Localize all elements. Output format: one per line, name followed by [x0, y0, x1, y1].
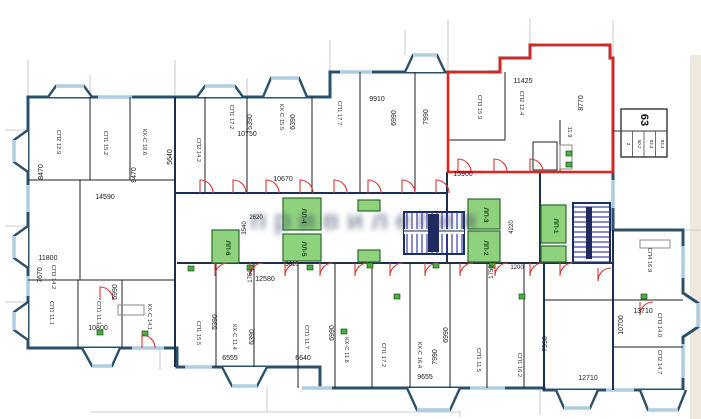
dim-label: 12710: [578, 375, 598, 382]
dim-label: 9910: [369, 96, 385, 103]
room-label: КХ-С 16.4: [416, 342, 422, 369]
room-label: СП2 12.9: [55, 130, 61, 154]
room-label: СП2 14.2: [195, 138, 201, 162]
page-edge: [690, 55, 701, 419]
dim-label: 7990: [432, 349, 439, 365]
room-label: КХ-С 11.4: [231, 324, 237, 351]
dim-label: 11425: [514, 78, 533, 85]
dim-label: 9470: [131, 167, 138, 183]
dim-label: 6990: [443, 327, 450, 343]
room-label: СП3 14.2: [50, 265, 56, 289]
room-label: СП1 11.1: [48, 301, 54, 325]
dim-label: 7990: [423, 109, 430, 125]
unit-stamp[interactable]: 63 3 50.2 83.3 83.3: [613, 109, 667, 157]
dim-label: 1750: [248, 269, 254, 283]
dim-label: 10670: [273, 176, 293, 183]
dim-label: 10800: [88, 325, 108, 332]
room-label: КХ-С 15.5: [278, 104, 284, 130]
room-label: СП1 16.2: [516, 353, 522, 377]
dim-label: 1200: [510, 265, 524, 271]
room-label: СП1 11.5: [475, 348, 481, 372]
room-label: СП1 11.7: [303, 325, 309, 349]
dim-label: 6990: [391, 110, 398, 126]
room-label: СП4 16.9: [646, 248, 652, 272]
room-label: КХ-С 14.1: [146, 304, 152, 330]
dim-label: 8470: [38, 164, 45, 180]
dim-label: 5390: [247, 114, 254, 130]
room-label: СП1 17.2: [228, 105, 234, 129]
room-label: КХ-С 18.6: [141, 129, 147, 155]
dim-label: 12580: [255, 276, 275, 283]
dim-label: 5640: [167, 149, 174, 165]
dim-label: 6990: [329, 325, 336, 341]
dim-label: 10750: [237, 131, 257, 138]
stamp-cell: 83.3: [649, 140, 654, 149]
dim-label: 8770: [578, 95, 585, 111]
room-label: СП3 15.9: [476, 95, 482, 119]
dim-label: 6390: [290, 114, 297, 130]
dim-label: 15900: [453, 171, 473, 178]
dim-label: 6555: [222, 355, 238, 362]
dim-label: 14590: [95, 194, 115, 201]
dim-label: 7670: [37, 267, 44, 283]
dim-label: 6390: [249, 329, 256, 345]
core-label: ЛП-6: [224, 240, 231, 255]
unit-number: 63: [638, 114, 650, 126]
dim-label: 11800: [39, 255, 58, 262]
stamp-cell: 50.2: [637, 140, 642, 149]
dim-label: 9655: [417, 374, 433, 381]
dim-label: 6990: [112, 284, 119, 300]
dim-label: 6640: [295, 355, 311, 362]
core-label: ЛП-2: [482, 240, 489, 255]
room-label: СП2 12.4: [518, 91, 524, 116]
stamp-cell: 83.3: [660, 140, 665, 149]
room-label: СП1 17.2: [380, 343, 386, 367]
room-label: СП1 15.5: [195, 321, 201, 345]
room-label: КХ-С 11.6: [343, 337, 349, 363]
room-label: СП1 11.1: [95, 301, 101, 325]
room-label: 11.9: [566, 127, 572, 138]
dim-label: 3540: [242, 221, 248, 235]
room-label: СП3 14.0: [656, 313, 662, 337]
dim-label: 10700: [618, 315, 625, 335]
dim-label: 1750: [489, 265, 495, 279]
dim-label: 7990: [542, 336, 549, 352]
dim-label: 3610: [285, 262, 299, 268]
room-label: СП2 14.7: [656, 350, 662, 374]
dim-label: 13710: [633, 308, 653, 315]
room-label: СП1 15.2: [102, 131, 108, 155]
core-label: ЛЛ-5: [300, 242, 307, 257]
floor-plan-screenshot: 63 3 50.2 83.3 83.3 ЛЛ-4 ЛЛ-5 ЛП-6 ЛП-3 …: [0, 0, 701, 419]
dim-label: 5390: [212, 314, 219, 330]
room-label: СП1 17.7: [336, 101, 342, 125]
watermark: привилегия: [250, 204, 590, 236]
